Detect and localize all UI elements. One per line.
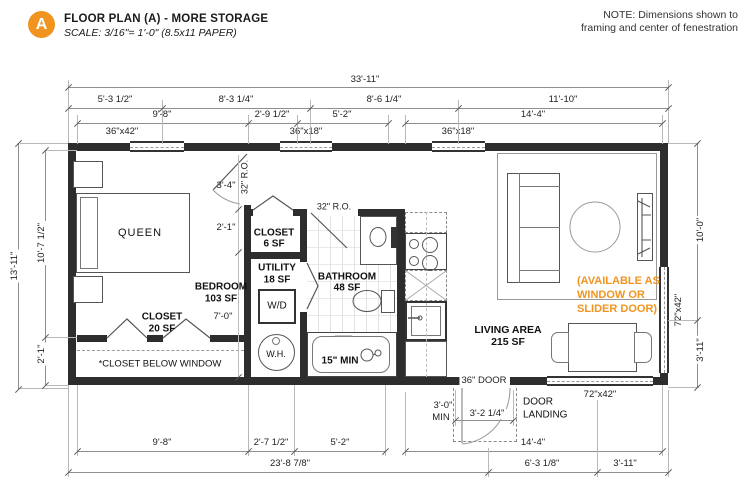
window-label-bottom-72x42: 72"x42" — [582, 390, 619, 400]
extension-line — [294, 385, 295, 456]
floor-plan-sheet: A FLOOR PLAN (A) - MORE STORAGE SCALE: 3… — [0, 0, 750, 483]
living-name: LIVING AREA — [474, 324, 541, 336]
dim-line-bottom-row1b — [405, 451, 662, 452]
extension-line — [662, 115, 663, 144]
door-36-label: 36" DOOR — [459, 376, 508, 386]
dim-left-upper: 10'-7 1/2" — [37, 221, 47, 265]
dim-landing-width: 3'-2 1/4" — [468, 409, 507, 419]
tub-min-label: 15" MIN — [322, 356, 359, 367]
dim-top3-3: 5'-2" — [331, 110, 354, 120]
utility-name: UTILITY — [258, 263, 296, 274]
extension-line — [405, 115, 406, 144]
water-heater-label: W.H. — [266, 349, 286, 359]
extension-line — [68, 385, 69, 477]
window-label-right-72x42: 72"x42" — [674, 292, 684, 329]
extension-line — [20, 388, 68, 389]
dim-bedroom-door-ro: 32" R.O. — [240, 160, 249, 194]
dim-bedroom-door: 3'-4" — [217, 181, 236, 191]
utility-area: 18 SF — [264, 275, 291, 286]
extension-line — [248, 385, 249, 456]
dim-landing-min-1: 3'-0" — [434, 401, 453, 411]
extension-line — [388, 115, 389, 144]
closet20-name: CLOSET — [142, 312, 183, 323]
available-note-line1: (AVAILABLE AS — [577, 275, 660, 287]
extension-line — [668, 143, 699, 144]
dim-line-top-row3b — [405, 123, 662, 124]
dim-bottom1-1: 9'-8" — [151, 438, 174, 448]
door-landing-line2: LANDING — [523, 410, 567, 421]
dim-bottom2-1: 23'-8 7/8" — [268, 459, 312, 469]
dim-top3-2: 2'-9 1/2" — [253, 110, 292, 120]
extension-line — [385, 385, 386, 456]
window-label-36x42: 36"x42" — [104, 127, 141, 137]
extension-line — [46, 385, 68, 386]
dim-right-lower: 3'-11" — [696, 336, 706, 364]
dim-top2-1: 5'-3 1/2" — [96, 95, 135, 105]
bedroom-name: BEDROOM — [195, 282, 247, 293]
dim-top3-4: 14'-4" — [519, 110, 547, 120]
extension-line — [46, 150, 77, 151]
bathroom-area: 48 SF — [334, 283, 361, 294]
window-label-36x18-a: 36"x18" — [288, 127, 325, 137]
dim-landing-min-2: MIN — [432, 413, 449, 423]
closet-below-window-note: *CLOSET BELOW WINDOW — [99, 359, 222, 370]
washer-dryer-label: W/D — [267, 301, 286, 312]
plan-linework — [0, 0, 750, 483]
closet6-name: CLOSET — [254, 228, 295, 239]
dim-right-upper: 10'-0" — [696, 216, 706, 244]
bedroom-area: 103 SF — [205, 294, 237, 305]
dim-bath-door-ro: 32" R.O. — [317, 202, 351, 211]
bathroom-name: BATHROOM — [318, 272, 376, 283]
door-landing-line1: DOOR — [523, 397, 553, 408]
bed-label: QUEEN — [118, 227, 162, 239]
extension-line — [77, 115, 78, 144]
dim-left-overall: 13'-11" — [10, 250, 20, 283]
extension-line — [297, 115, 298, 144]
extension-line — [77, 385, 78, 456]
extension-line — [662, 385, 663, 456]
dim-bottom1-3: 5'-2" — [329, 438, 352, 448]
closet20-area: 20 SF — [149, 324, 176, 335]
dim-line-landing — [455, 420, 513, 421]
available-note-line3: SLIDER DOOR) — [577, 303, 657, 315]
dim-closet-depth: 2'-1" — [217, 223, 236, 233]
dim-left-lower: 2'-1" — [37, 343, 47, 366]
available-note-line2: WINDOW OR — [577, 289, 645, 301]
dim-top2-3: 8'-6 1/4" — [365, 95, 404, 105]
extension-line — [668, 80, 669, 143]
dim-top2-2: 8'-3 1/4" — [217, 95, 256, 105]
living-area: 215 SF — [491, 336, 525, 348]
dim-bedroom-width: 7'-0" — [214, 312, 233, 322]
extension-line — [248, 115, 249, 144]
dim-bottom2-2: 6'-3 1/8" — [523, 459, 562, 469]
extension-line — [668, 320, 699, 321]
extension-line — [20, 143, 68, 144]
extension-line — [668, 390, 669, 477]
extension-line — [68, 80, 69, 143]
extension-line — [405, 392, 406, 456]
dim-bottom1-4: 14'-4" — [519, 438, 547, 448]
extension-line — [597, 400, 598, 477]
dim-overall-width: 33'-11" — [349, 75, 382, 85]
closet6-area: 6 SF — [263, 239, 284, 250]
dim-line-bottom-row2 — [68, 472, 668, 473]
dim-line-top-row3a — [77, 123, 388, 124]
dim-line-overall-top — [68, 87, 668, 88]
dim-bottom2-3: 3'-11" — [611, 459, 639, 469]
extension-line — [46, 337, 77, 338]
extension-line — [668, 387, 699, 388]
dim-line-bottom-row1a — [77, 451, 385, 452]
dim-bottom1-2: 2'-7 1/2" — [252, 438, 291, 448]
dim-top2-4: 11'-10" — [547, 95, 580, 105]
